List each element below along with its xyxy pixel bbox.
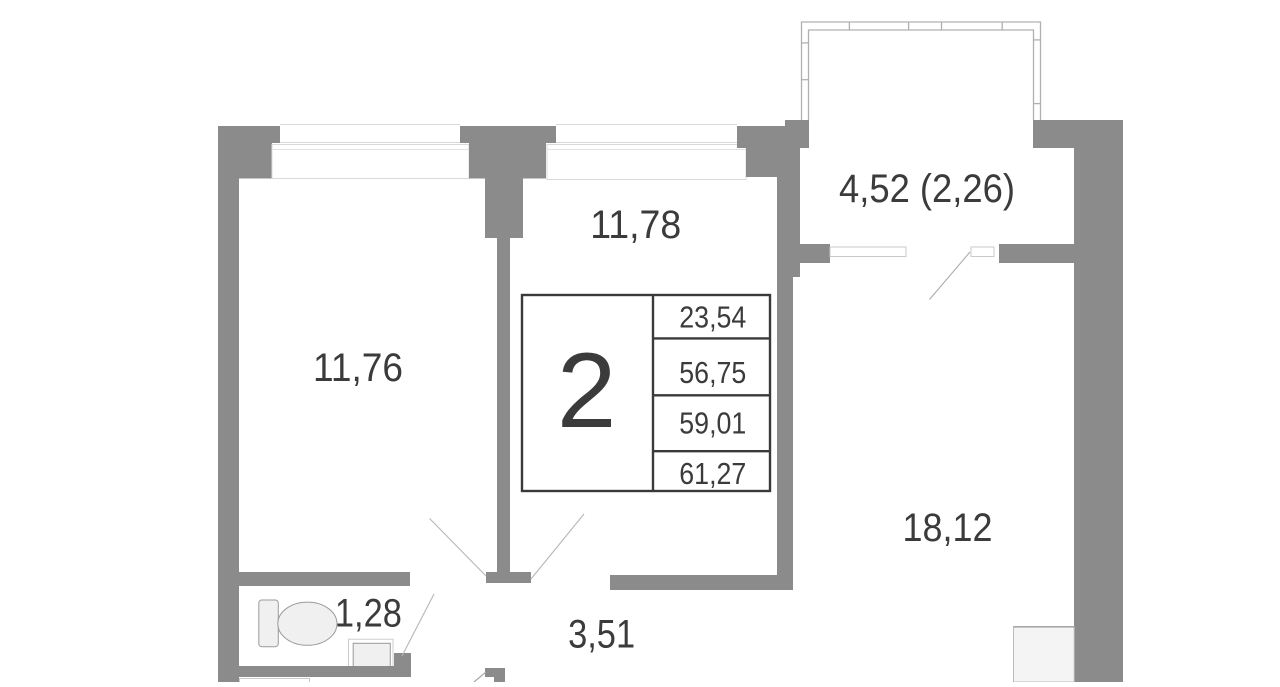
svg-text:11,76: 11,76 [313,346,403,390]
svg-text:4,52 (2,26): 4,52 (2,26) [839,167,1015,211]
svg-text:3,51: 3,51 [568,613,635,657]
svg-text:59,01: 59,01 [679,405,746,440]
svg-text:23,54: 23,54 [679,300,746,335]
svg-text:2: 2 [557,330,617,450]
svg-text:18,12: 18,12 [903,506,993,550]
svg-text:61,27: 61,27 [679,456,746,491]
svg-text:56,75: 56,75 [679,355,746,390]
svg-text:1,28: 1,28 [335,592,402,636]
svg-text:11,78: 11,78 [590,203,681,247]
